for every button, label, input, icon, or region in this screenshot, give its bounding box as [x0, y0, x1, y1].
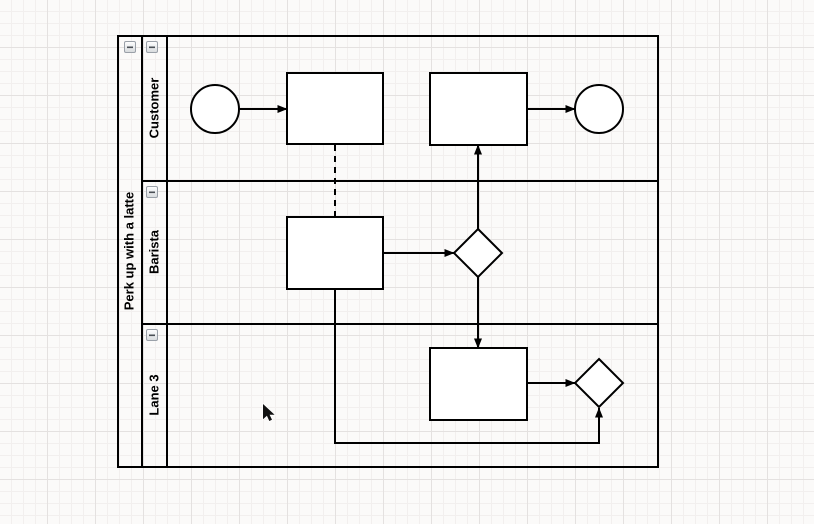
- end-event-circle[interactable]: [575, 85, 623, 133]
- lane-label-lane3[interactable]: Lane 3: [146, 374, 161, 415]
- minus-icon: [149, 335, 155, 337]
- diagram-canvas[interactable]: Perk up with a latte Customer Barista La…: [0, 0, 814, 524]
- minus-icon: [149, 192, 155, 194]
- diagram-svg: Perk up with a latte Customer Barista La…: [0, 0, 814, 524]
- start-event-circle[interactable]: [191, 85, 239, 133]
- lane-label-barista[interactable]: Barista: [146, 229, 161, 274]
- lane-lane3-collapse-button[interactable]: [147, 330, 158, 341]
- minus-icon: [149, 47, 155, 49]
- minus-icon: [127, 47, 133, 49]
- task-2-rectangle[interactable]: [430, 73, 527, 145]
- task-4-rectangle[interactable]: [430, 348, 527, 420]
- lane-customer-collapse-button[interactable]: [147, 42, 158, 53]
- task-1-rectangle[interactable]: [287, 73, 383, 144]
- pool-title[interactable]: Perk up with a latte: [121, 192, 136, 310]
- lane-barista-collapse-button[interactable]: [147, 187, 158, 198]
- mouse-cursor-icon: [263, 404, 275, 421]
- gateway-1-diamond[interactable]: [454, 229, 502, 277]
- pool-collapse-button[interactable]: [125, 42, 136, 53]
- lane-label-customer[interactable]: Customer: [146, 78, 161, 139]
- task-3-rectangle[interactable]: [287, 217, 383, 289]
- gateway-2-diamond[interactable]: [575, 359, 623, 407]
- nodes: [191, 73, 623, 420]
